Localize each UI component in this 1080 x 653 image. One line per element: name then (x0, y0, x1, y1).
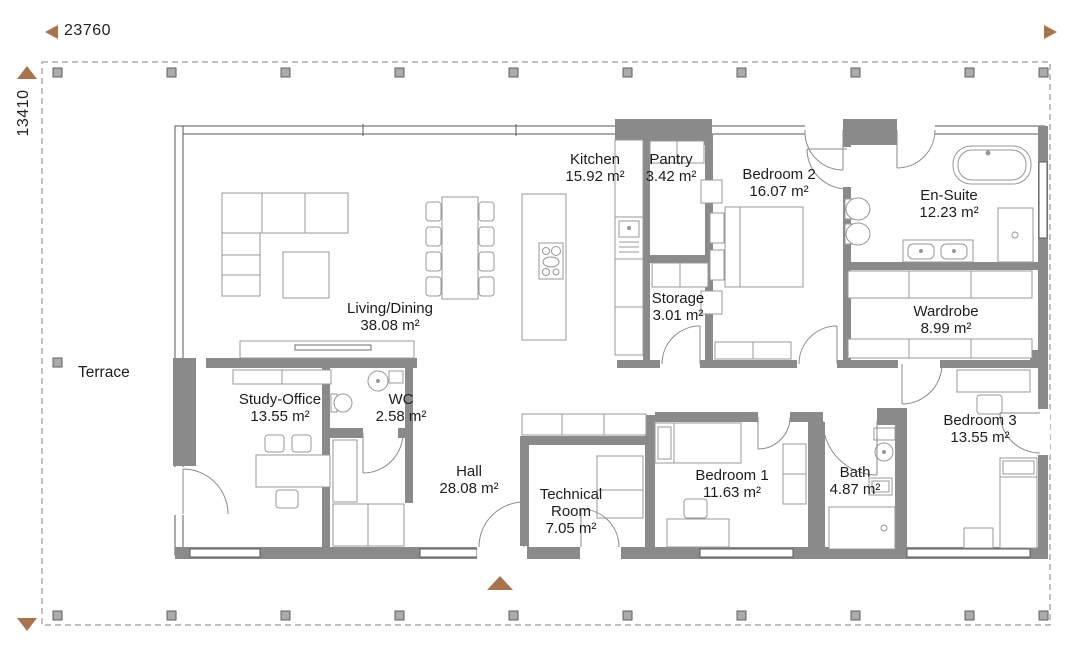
entrance-arrow (487, 576, 513, 590)
room-label-technical-room: Technical Room7.05 m² (520, 486, 622, 537)
room-label-pantry: Pantry3.42 m² (646, 151, 697, 185)
floor-plan-canvas: 23760 13410 Terrace Kitchen15.92 m² Pant… (0, 0, 1080, 653)
room-label-wardrobe: Wardrobe8.99 m² (913, 303, 978, 337)
room-label-living-dining: Living/Dining38.08 m² (347, 300, 433, 334)
storage-shelves (652, 263, 708, 287)
furniture-layer (222, 140, 1037, 549)
bathtub (953, 146, 1031, 184)
room-label-hall: Hall28.08 m² (439, 463, 498, 497)
room-label-storage: Storage3.01 m² (652, 290, 705, 324)
dimension-width-label: 23760 (64, 22, 111, 40)
coffee-table (283, 252, 329, 298)
dimension-arrow-right (1044, 25, 1057, 39)
dimension-height-label: 13410 (15, 88, 33, 138)
tv-sideboard (240, 341, 414, 358)
room-label-bedroom3: Bedroom 313.55 m² (943, 412, 1016, 446)
room-label-bedroom1: Bedroom 111.63 m² (695, 467, 768, 501)
terrace-label: Terrace (78, 364, 130, 382)
room-label-kitchen: Kitchen15.92 m² (565, 151, 624, 185)
dimension-arrow-left (45, 25, 58, 39)
dimension-arrow-up (17, 66, 37, 79)
double-vanity (903, 240, 973, 262)
dimension-arrow-down (17, 618, 37, 631)
dining-table-set (426, 197, 494, 299)
ensuite-shower (998, 208, 1033, 262)
room-label-ensuite: En-Suite12.23 m² (919, 187, 978, 221)
room-label-bath: Bath4.87 m² (830, 464, 881, 498)
room-label-bedroom2: Bedroom 216.07 m² (742, 166, 815, 200)
bed-bedroom3 (957, 370, 1037, 548)
room-label-study-office: Study-Office13.55 m² (239, 391, 321, 425)
bed-bedroom2 (701, 180, 803, 359)
room-label-wc: WC2.58 m² (376, 391, 427, 425)
kitchen-island (522, 194, 566, 340)
